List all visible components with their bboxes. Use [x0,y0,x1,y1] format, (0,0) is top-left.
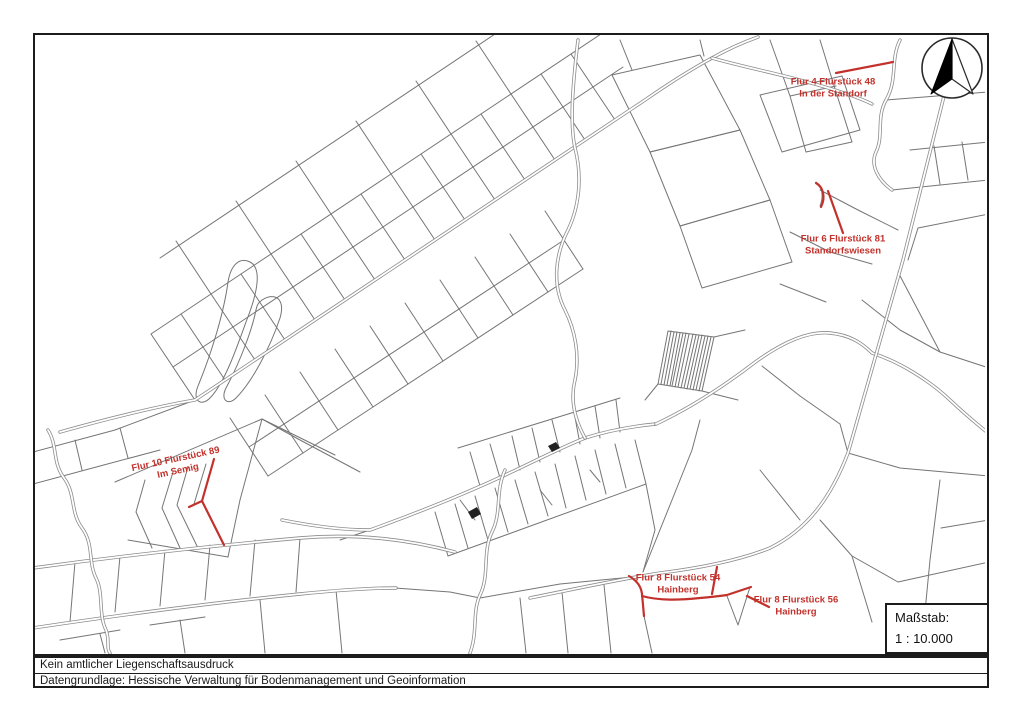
road-casing-line [557,40,585,438]
road-fill-line [712,58,872,104]
road-fill-line [530,40,958,598]
road-fill-line [35,588,396,628]
parcel-boundary-line [35,400,195,452]
road-casing-line [282,424,656,530]
parcel-boundary-line [296,538,300,592]
parcel-boundary-line [643,484,655,572]
parcel-boundary-line [615,444,626,488]
parcel-boundary-line [616,400,620,432]
parcel-boundary-line [780,284,826,302]
parcel-boundary-line [892,180,985,190]
parcel-boundary-line [151,35,601,334]
parcel-boundary-line [194,464,206,504]
parcel-boundary-line [150,617,205,625]
parcel-boundary-line [115,419,262,482]
map-highlights [189,62,893,616]
parcel-boundary-line [476,41,511,94]
parcel-boundary-line [470,452,480,486]
parcel-boundary-line [962,142,968,180]
parcel-boundary-line [60,630,120,640]
parcel-boundary-line [490,444,500,478]
parcel-boundary-line [260,600,265,653]
parcel-boundary-line [455,504,468,548]
parcel-boundary-line [540,490,552,505]
highlighted-parcel-line [816,183,823,207]
parcel-boundary-line [555,464,566,508]
parcel-boundary-line [675,333,686,387]
parcel-boundary-line [820,190,898,230]
parcel-boundary-line [475,496,488,540]
highlighted-parcel-line [828,191,843,233]
scale-value: 1 : 10.000 [895,629,979,650]
parcel-boundary-line [934,146,940,184]
road-casing-line [35,536,455,568]
parcel-boundary-line [645,384,658,400]
parcel-boundary-line [535,472,548,516]
scale-box: Maßstab: 1 : 10.000 [885,603,989,654]
parcel-boundary-line [512,436,520,470]
parcel-boundary-line [228,419,262,557]
parcel-boundary-line [862,300,940,352]
parcel-boundary-line [690,335,702,389]
parcel-boundary-line [680,200,792,288]
parcel-boundary-line [714,330,745,337]
footer: Kein amtlicher Liegenschaftsausdruck Dat… [33,656,989,688]
parcel-boundary-line [848,453,985,476]
footer-disclaimer: Kein amtlicher Liegenschaftsausdruck [35,658,987,674]
parcel-boundary-line [177,467,197,546]
parcel-boundary-line [612,55,740,152]
parcel-boundary-line [262,419,335,455]
parcel-boundary-line [562,592,568,653]
parcel-boundary-line [672,333,683,386]
parcel-boundary-line [115,556,120,612]
parcel-boundary-line [760,76,860,152]
parcel-boundary-line [249,240,564,447]
parcel-boundary-line [296,161,331,214]
parcel-boundary-line [180,620,185,653]
parcel-boundary-line [940,352,985,368]
parcel-boundary-line [820,520,898,582]
road-fill-line [557,40,585,438]
highlighted-parcel-line [189,501,202,507]
highlighted-parcel-line [642,587,751,600]
parcel-boundary-line [448,484,646,556]
highlighted-parcel-line [202,459,224,545]
parcel-boundary-line [136,480,152,548]
parcel-boundary-line [416,81,451,134]
parcel-boundary-line [173,67,623,367]
parcel-boundary-line [790,232,872,264]
highlighted-parcel-line [712,567,717,594]
parcel-boundary-line [395,588,480,598]
parcel-boundary-line [699,337,711,391]
parcel-boundary-line [532,428,540,462]
parcel-boundary-line [336,590,342,653]
scale-label: Maßstab: [895,608,979,629]
footer-source: Datengrundlage: Hessische Verwaltung für… [35,674,987,689]
parcel-boundary-line [356,121,391,174]
parcel-boundary-line [910,142,985,150]
parcel-boundary-line [520,598,526,653]
parcel-boundary-line [250,540,255,596]
parcel-boundary-line [595,450,606,494]
road-fill-line [282,424,656,530]
map-sheet: Flur 4 Flurstück 48In der StandorfFlur 6… [0,0,1024,724]
parcel-boundary-line [684,335,696,388]
road-casing-line [35,588,396,628]
parcel-boundary-line [458,398,620,448]
road-casing-line [530,40,958,598]
parcel-boundary-line [941,520,985,528]
parcel-boundary-line [693,336,705,390]
parcel-boundary-line [162,472,180,548]
parcel-boundary-line [700,40,704,56]
north-arrow-icon [922,38,982,98]
parcel-boundary-line [236,201,271,254]
parcel-boundary-line [590,470,600,482]
parcel-boundary-line [575,456,586,500]
parcel-boundary-line [644,616,652,653]
parcel-boundary-line [762,366,840,424]
parcel-boundary-line [635,440,646,484]
parcel-boundary-line [515,480,528,524]
parcel-boundary-line [760,470,800,520]
parcel-boundary-line [262,419,360,472]
road-casing-line [60,37,758,432]
parcel-boundary-line [160,550,165,606]
parcel-boundary-line [120,428,128,458]
parcel-boundary-line [918,214,985,228]
parcel-boundary-line [898,562,985,582]
parcel-boundary-line [620,40,632,70]
highlighted-parcel-line [836,62,893,73]
parcel-boundary-line [643,420,700,572]
parcel-boundary-line [840,424,848,453]
parcel-boundary-line [70,562,75,622]
parcel-boundary-line [75,440,82,470]
parcel-boundary-line [176,241,211,294]
map-linework [35,35,985,653]
parcel-boundary-line [604,585,611,653]
parcel-boundary-line [100,634,105,653]
parcel-boundary-line [650,130,770,226]
parcel-boundary-line [696,336,708,390]
map-canvas [35,35,985,654]
parcel-boundary-line [687,335,699,389]
highlighted-parcel-line [747,596,769,607]
